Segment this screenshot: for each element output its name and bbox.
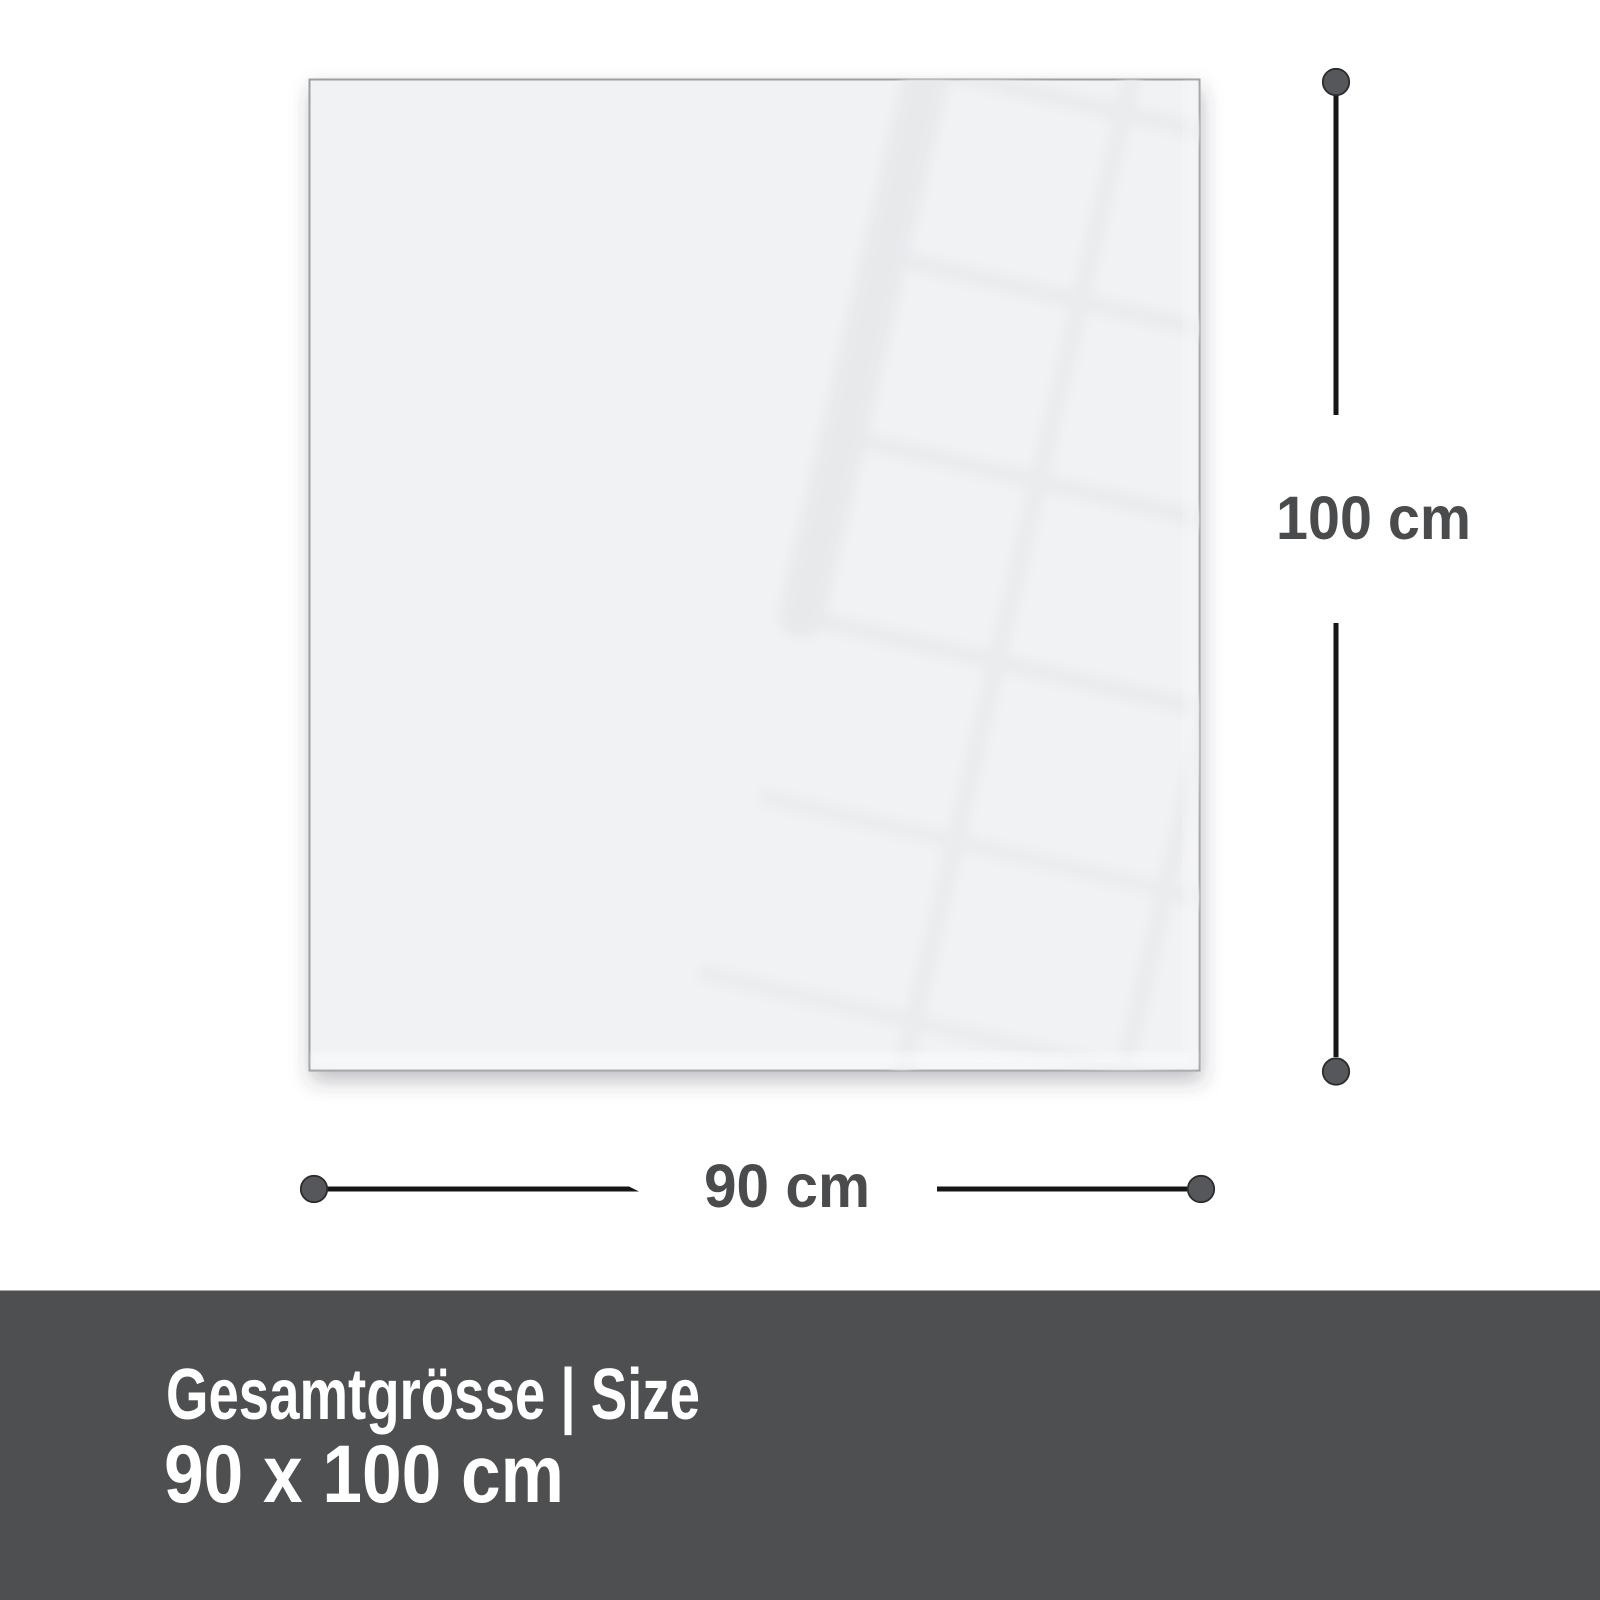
- svg-text:90 x 100 cm: 90 x 100 cm: [164, 1429, 564, 1520]
- svg-text:Gesamtgrösse | Size: Gesamtgrösse | Size: [166, 1354, 700, 1435]
- svg-text:100 cm: 100 cm: [1276, 484, 1471, 552]
- svg-text:90 cm: 90 cm: [704, 1152, 870, 1220]
